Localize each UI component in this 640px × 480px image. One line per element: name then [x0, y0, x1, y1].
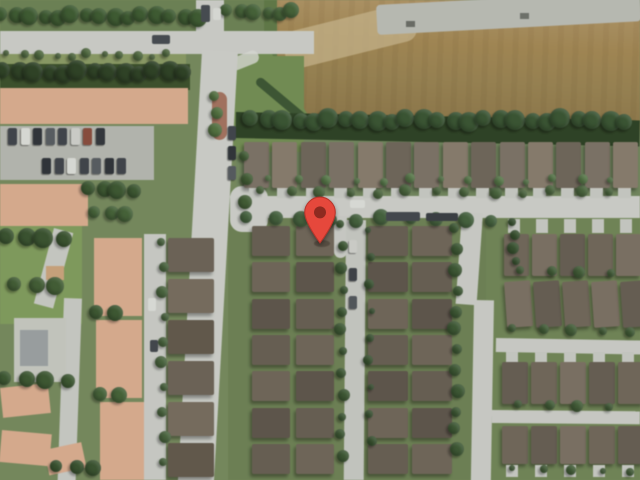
tree: [70, 460, 84, 474]
tree: [108, 181, 126, 199]
parked-car: [58, 128, 67, 145]
tree: [505, 110, 525, 130]
house: [412, 262, 452, 292]
tree: [85, 460, 101, 476]
tree: [220, 4, 232, 16]
tree: [365, 227, 371, 233]
strip-vehicle: [406, 21, 415, 27]
tree: [240, 211, 252, 223]
tree: [449, 364, 461, 376]
house: [296, 444, 334, 474]
tree: [338, 241, 348, 251]
tree: [399, 184, 411, 196]
tree: [20, 7, 38, 25]
tree: [67, 60, 87, 80]
parked-car: [96, 128, 105, 145]
house: [620, 280, 640, 328]
house: [414, 142, 439, 188]
tree: [367, 253, 375, 261]
truck: [201, 5, 210, 22]
tree: [459, 187, 469, 197]
driveway: [564, 219, 576, 233]
tree: [363, 355, 373, 365]
tree: [449, 223, 459, 233]
tree: [160, 383, 168, 391]
tree: [451, 407, 461, 417]
tree: [89, 305, 103, 319]
tree: [626, 468, 634, 476]
house: [412, 408, 452, 438]
tree: [115, 51, 123, 59]
driveway: [592, 219, 604, 233]
tree: [334, 323, 346, 335]
tree: [272, 110, 292, 130]
house: [368, 408, 408, 438]
bush: [464, 176, 472, 184]
parked-car: [33, 128, 42, 145]
tree: [576, 185, 588, 197]
tree: [369, 308, 375, 314]
bush: [354, 178, 360, 184]
palm-tree: [211, 107, 223, 119]
car: [150, 340, 158, 352]
tree: [238, 195, 252, 209]
tree: [46, 277, 64, 295]
tree: [340, 286, 348, 294]
tree: [366, 334, 374, 342]
tree: [93, 387, 107, 401]
house: [252, 226, 290, 256]
parked-car: [21, 128, 30, 145]
tree: [242, 110, 258, 126]
tree: [539, 324, 549, 334]
tree: [485, 215, 497, 227]
house: [412, 371, 452, 401]
house: [560, 362, 586, 404]
bush: [380, 178, 388, 186]
house: [471, 142, 496, 188]
hedge: [510, 230, 520, 240]
tree: [338, 413, 346, 421]
tree: [143, 61, 161, 79]
house: [252, 335, 290, 365]
house: [296, 262, 334, 292]
house: [168, 279, 214, 313]
house: [168, 402, 214, 436]
tree: [616, 114, 632, 130]
tree: [605, 188, 613, 196]
house: [368, 335, 408, 365]
tree: [36, 371, 54, 389]
tree: [475, 110, 491, 126]
bush: [548, 174, 556, 182]
house: [504, 280, 533, 328]
tree: [29, 277, 45, 293]
palm-tree: [208, 123, 222, 137]
tree: [19, 371, 35, 387]
parked-car: [349, 268, 357, 281]
tree: [396, 109, 414, 127]
tree: [157, 238, 165, 246]
parked-car: [105, 158, 114, 174]
house: [168, 443, 214, 477]
bush: [494, 176, 504, 186]
tree: [365, 410, 373, 418]
tree: [545, 400, 555, 410]
parked-car: [349, 240, 357, 253]
hedge: [507, 242, 519, 254]
tree: [283, 2, 299, 18]
house: [368, 371, 408, 401]
tree: [566, 465, 576, 475]
tree: [34, 50, 44, 60]
hedge: [508, 218, 516, 226]
tree: [61, 374, 75, 388]
tree: [159, 262, 169, 272]
tree: [573, 266, 585, 278]
tree: [450, 306, 462, 318]
parked-car: [8, 128, 17, 145]
driveway: [505, 188, 518, 198]
house: [252, 299, 290, 329]
driveway: [590, 188, 603, 198]
tree: [149, 54, 155, 60]
map-marker[interactable]: [302, 196, 338, 249]
tree: [545, 185, 555, 195]
tree: [433, 187, 441, 195]
tree: [599, 327, 607, 335]
house: [252, 262, 290, 292]
tree: [155, 356, 167, 368]
tree: [335, 262, 347, 274]
tree: [117, 206, 133, 222]
tree: [347, 189, 355, 197]
clubhouse-roof: [20, 330, 48, 366]
house: [562, 280, 591, 328]
house: [531, 426, 557, 464]
tree: [159, 458, 167, 466]
tree: [0, 371, 11, 385]
tree: [509, 465, 515, 471]
parked-car: [42, 158, 51, 174]
tree: [605, 403, 613, 411]
house: [252, 444, 290, 474]
bush: [578, 174, 588, 184]
house: [531, 362, 557, 404]
house: [368, 262, 408, 292]
street-right-h3: [492, 410, 640, 424]
house: [613, 142, 638, 188]
tree: [3, 50, 9, 56]
parked-car: [228, 126, 236, 140]
house: [412, 299, 452, 329]
tree: [287, 186, 297, 196]
tree: [111, 387, 127, 403]
tree: [107, 305, 123, 321]
tree: [81, 181, 95, 195]
house: [296, 299, 334, 329]
tree: [33, 228, 53, 248]
street-right-vertical-b: [471, 300, 494, 480]
tree: [458, 212, 474, 228]
house: [591, 280, 620, 328]
tree: [132, 6, 148, 22]
driveway: [536, 219, 548, 233]
tree: [175, 64, 191, 80]
car: [148, 298, 156, 311]
parked-car: [71, 128, 80, 145]
bush: [405, 173, 415, 183]
tree: [239, 151, 249, 161]
tree: [158, 337, 168, 347]
tree: [367, 436, 377, 446]
house: [618, 362, 640, 404]
house: [368, 444, 408, 474]
tree: [547, 266, 557, 276]
parked-car: [117, 158, 126, 174]
lane-mid: [344, 220, 366, 480]
tree: [450, 442, 464, 456]
house: [618, 426, 640, 464]
tree: [451, 384, 465, 398]
townhouse-roof: [0, 88, 188, 124]
tree: [56, 231, 72, 247]
tree: [337, 307, 347, 317]
parked-car: [92, 158, 101, 174]
tree: [451, 243, 463, 255]
townhouse-roof: [0, 184, 88, 226]
bush: [265, 175, 271, 181]
bush: [607, 177, 613, 183]
house: [502, 426, 528, 464]
tree: [514, 400, 522, 408]
house: [272, 142, 297, 188]
tree: [519, 190, 527, 198]
tree: [351, 111, 369, 129]
tree: [61, 5, 79, 23]
house: [589, 362, 615, 404]
house: [168, 320, 214, 354]
tree: [156, 286, 168, 298]
parked-car: [83, 128, 92, 145]
tree: [21, 50, 29, 58]
tree: [448, 422, 460, 434]
tree: [490, 187, 502, 199]
truck: [386, 212, 420, 221]
house: [252, 408, 290, 438]
tree: [368, 384, 374, 390]
tree: [55, 53, 61, 59]
tree: [429, 112, 445, 128]
tree: [452, 344, 462, 354]
tree: [337, 450, 349, 462]
tree: [157, 407, 167, 417]
house: [296, 371, 334, 401]
house: [502, 362, 528, 404]
tree: [571, 400, 583, 412]
tree: [23, 62, 43, 82]
house: [412, 335, 452, 365]
tree: [447, 321, 461, 335]
house: [329, 142, 354, 188]
tree: [241, 173, 253, 185]
house: [412, 444, 452, 474]
parked-car: [228, 166, 236, 180]
tree: [625, 327, 635, 337]
house: [168, 361, 214, 395]
tree: [583, 111, 601, 129]
parked-car: [55, 158, 64, 174]
map-pin-icon: [302, 196, 338, 244]
townhouse-roof: [94, 238, 142, 316]
tree: [162, 49, 170, 57]
tree: [364, 279, 374, 289]
bush: [295, 175, 303, 183]
tree: [88, 206, 100, 218]
house: [616, 234, 640, 276]
house: [252, 371, 290, 401]
driveway: [561, 188, 574, 198]
house: [533, 280, 562, 328]
tree: [607, 269, 615, 277]
parked-car: [80, 158, 89, 174]
strip-vehicle: [520, 13, 529, 19]
bush: [523, 179, 529, 185]
parked-car: [67, 158, 76, 174]
house: [589, 426, 615, 464]
bush: [321, 175, 331, 185]
tree: [339, 347, 347, 355]
driveway: [620, 219, 632, 233]
tree: [565, 324, 577, 336]
house: [168, 238, 214, 272]
house: [560, 426, 586, 464]
townhouse-roof: [0, 430, 52, 466]
tree: [600, 468, 606, 474]
house: [412, 226, 452, 256]
parked-car: [228, 146, 236, 160]
house: [368, 299, 408, 329]
tree: [81, 48, 91, 58]
parked-car: [349, 296, 357, 309]
tree: [269, 211, 283, 225]
tree: [7, 277, 21, 291]
tree: [162, 9, 176, 23]
tree: [50, 460, 62, 472]
tree: [338, 389, 350, 401]
tree: [516, 266, 524, 274]
map-canvas[interactable]: [0, 0, 640, 480]
tree: [159, 431, 171, 443]
tree: [133, 51, 143, 61]
car: [350, 200, 365, 208]
driveway: [419, 188, 432, 198]
tree: [508, 324, 516, 332]
tree: [448, 263, 462, 277]
house: [296, 408, 334, 438]
tree: [102, 51, 108, 57]
tree: [245, 4, 261, 20]
parked-car: [46, 128, 55, 145]
tree: [540, 465, 548, 473]
house: [556, 142, 581, 188]
house: [296, 335, 334, 365]
driveway: [476, 188, 489, 198]
tree: [335, 429, 345, 439]
tree: [336, 368, 346, 378]
truck: [426, 213, 458, 221]
hedge: [512, 257, 520, 265]
tree: [127, 184, 141, 198]
car: [152, 35, 170, 44]
house: [368, 226, 408, 256]
bush: [438, 176, 444, 182]
tree: [99, 63, 117, 81]
tree: [318, 108, 338, 128]
car: [213, 8, 221, 20]
tree: [453, 286, 463, 296]
townhouse-roof: [100, 402, 144, 480]
tree: [550, 108, 570, 128]
tree: [349, 214, 363, 228]
pin-dot: [314, 206, 326, 218]
tree: [256, 186, 264, 194]
tree: [91, 8, 107, 24]
tree: [373, 189, 383, 199]
tree: [161, 313, 169, 321]
pin-body: [305, 197, 336, 243]
driveway: [618, 188, 631, 198]
palm-tree: [209, 91, 219, 101]
